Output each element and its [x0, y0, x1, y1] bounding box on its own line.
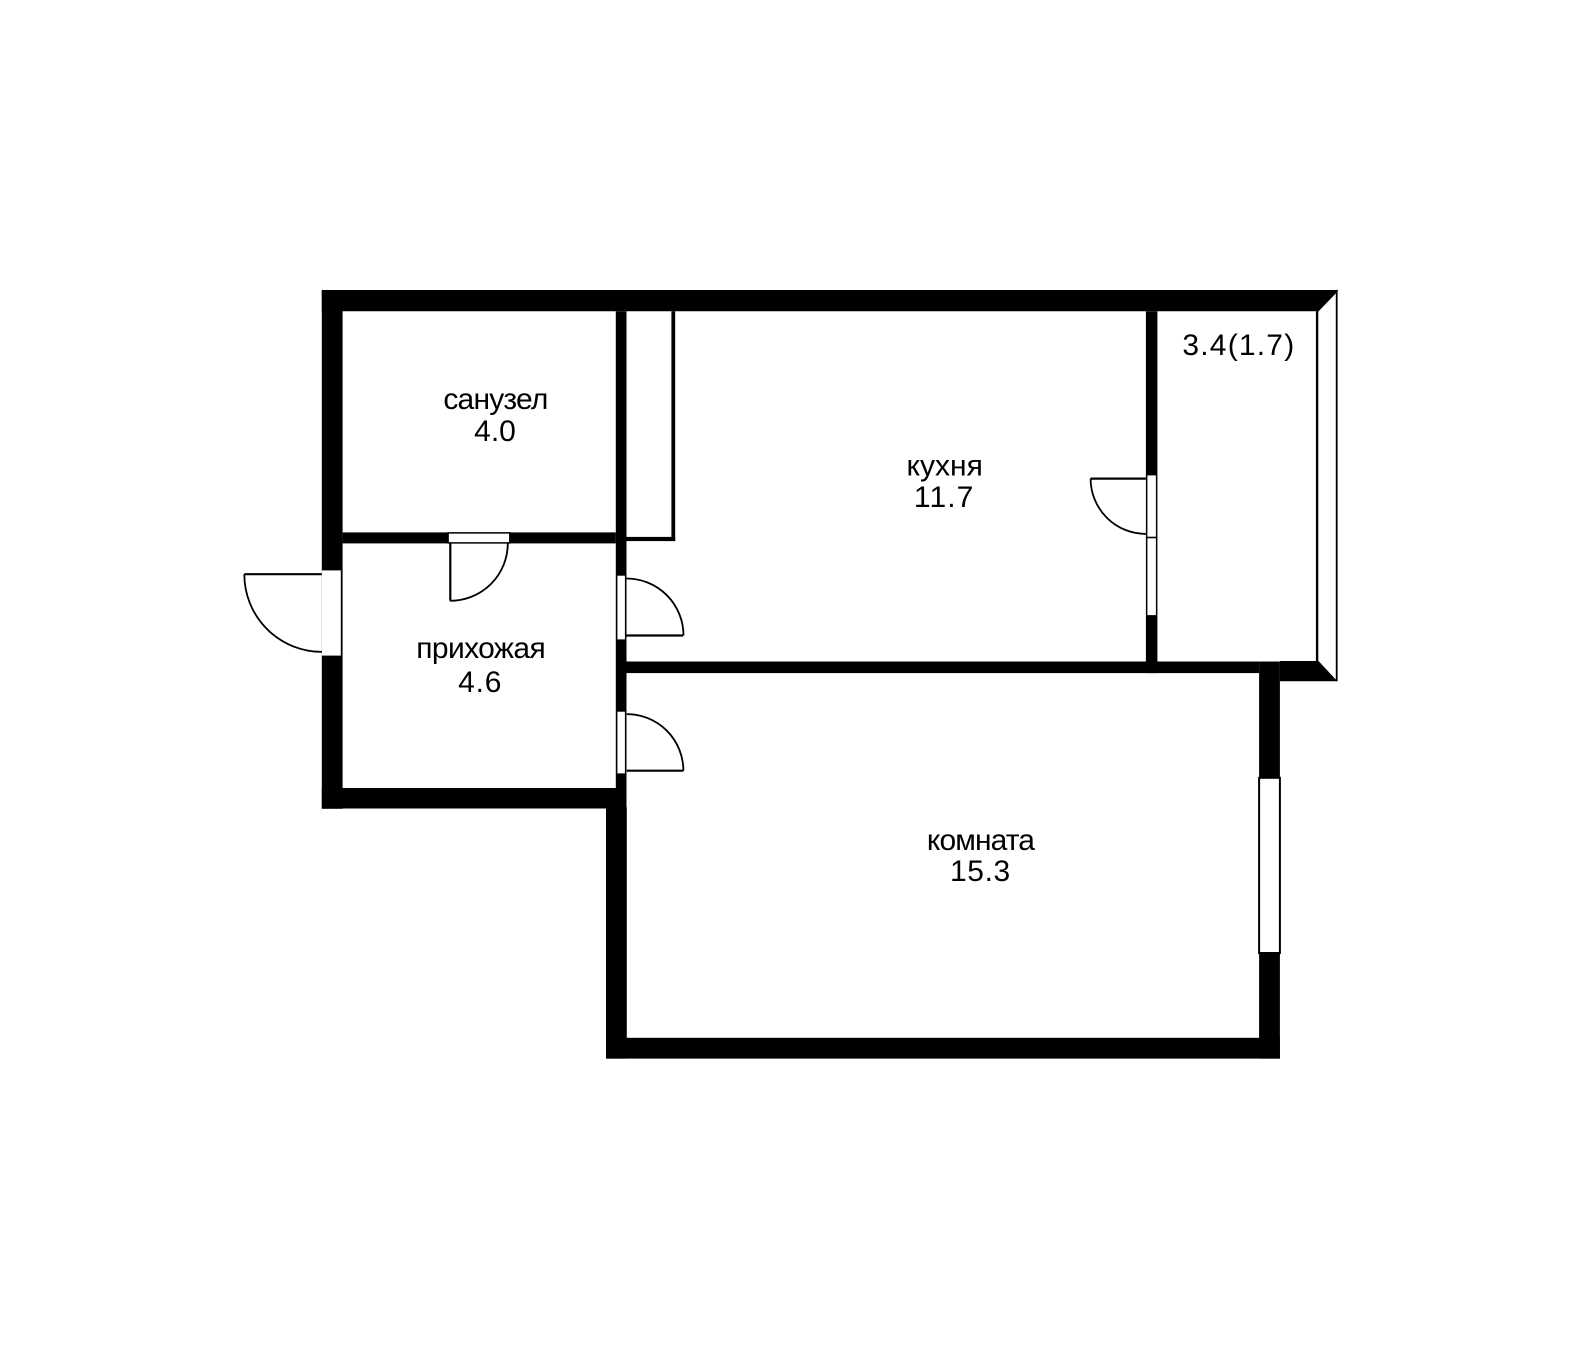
svg-text:4.6: 4.6 — [458, 666, 502, 699]
svg-text:комната: комната — [927, 824, 1035, 857]
svg-text:3.4(1.7): 3.4(1.7) — [1182, 329, 1295, 362]
svg-text:4.0: 4.0 — [474, 415, 516, 448]
svg-text:11.7: 11.7 — [914, 481, 975, 514]
svg-text:15.3: 15.3 — [950, 855, 1011, 888]
svg-text:прихожая: прихожая — [416, 632, 545, 665]
svg-text:санузел: санузел — [443, 383, 547, 416]
svg-text:кухня: кухня — [907, 449, 983, 482]
